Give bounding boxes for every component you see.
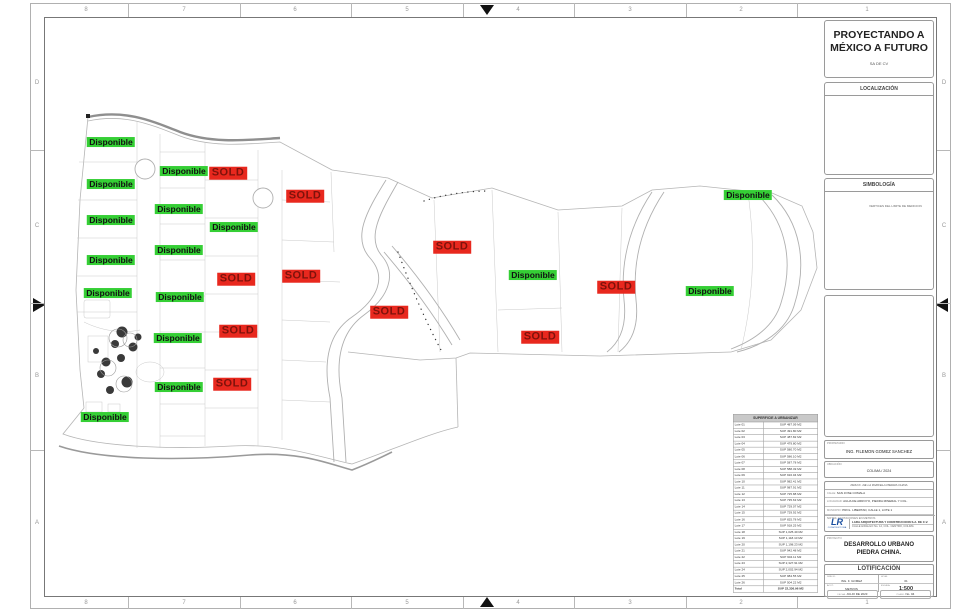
lot-label-available: Disponible — [155, 245, 203, 255]
grid-column-number-top: 8 — [84, 7, 87, 13]
grid-column-number-top: 6 — [293, 7, 296, 13]
info-row: MUNICIPIO: PROL. LIBERTAD, CALLE 1, LOTE… — [825, 507, 933, 515]
field-value: METROS — [825, 587, 878, 591]
ruler-tick — [574, 597, 575, 609]
ruler-tick — [686, 597, 687, 609]
grid-row-letter-right: B — [942, 373, 946, 379]
company-title-block: PROYECTANDO A MÉXICO A FUTURO SA DE CV — [824, 20, 934, 78]
simbologia-title: SIMBOLOGÍA — [825, 179, 933, 192]
lot-label-available: Disponible — [210, 222, 258, 232]
lot-label-available: Disponible — [81, 412, 129, 422]
builder-address: CALLE HIDALGO No. 12, COL. CENTRO, COLIM… — [852, 525, 933, 528]
field-label: ESCALA: — [881, 585, 890, 587]
lot-label-available: Disponible — [87, 137, 135, 147]
grid-row-letter-right: C — [942, 223, 946, 229]
surface-table-title: SUPERFICIE A URBANIZAR — [733, 414, 817, 422]
field-label: HOJA: — [881, 576, 887, 578]
ruler-tick — [797, 597, 798, 609]
company-logo: LR CONSTRUCTORA — [825, 518, 849, 529]
ubicacion-box: UBICACIÓN: COLIMA / 2024 — [824, 461, 934, 478]
grid-column-number-bottom: 6 — [293, 600, 296, 606]
lot-label-sold: SOLD — [521, 331, 559, 344]
info-row: LOCALIDAD: AGUA DE ARROYO, PIEDRA MINERA… — [825, 498, 933, 506]
ruler-tick — [463, 3, 464, 17]
info-row-label: LOCALIDAD: — [827, 500, 842, 503]
lot-label-sold: SOLD — [217, 273, 255, 286]
grid-column-number-top: 4 — [516, 7, 519, 13]
titleblock-field: ACOT: METROS — [825, 584, 879, 592]
grid-column-number-bottom: 2 — [739, 600, 742, 606]
grid-row-letter-left: A — [35, 520, 39, 526]
grid-column-number-top: 3 — [628, 7, 631, 13]
lot-label-available: Disponible — [87, 255, 135, 265]
ruler-tick — [128, 3, 129, 17]
ruler-tick — [574, 3, 575, 17]
owner-box: PROPIETARIO: ING. FILEMON GOMEZ SANCHEZ — [824, 440, 934, 459]
project-info-header: FRACC. DE LA PARCELA PIEDRA CHINA — [825, 482, 933, 490]
lot-label-sold: SOLD — [282, 270, 320, 283]
grid-column-number-top: 2 — [739, 7, 742, 13]
grid-column-number-bottom: 5 — [405, 600, 408, 606]
grid-column-number-bottom: 3 — [628, 600, 631, 606]
field-label: FECHA: — [838, 594, 846, 596]
lot-label-sold: SOLD — [433, 241, 471, 254]
ruler-tick — [937, 303, 951, 304]
total-area: SUP 22,336.96 M2 — [764, 586, 818, 592]
lot-label-sold: SOLD — [286, 190, 324, 203]
ruler-tick — [686, 3, 687, 17]
lot-label-available: Disponible — [154, 333, 202, 343]
lotificacion-block: LOTIFICACIÓN DIBUJO: ING. F. GOMEZ HOJA:… — [824, 564, 934, 597]
ruler-tick — [797, 3, 798, 17]
lot-label-sold: SOLD — [209, 167, 247, 180]
grid-column-number-bottom: 8 — [84, 600, 87, 606]
grid-column-number-bottom: 1 — [865, 600, 868, 606]
lot-label-available: Disponible — [686, 286, 734, 296]
lot-label-available: Disponible — [160, 166, 208, 176]
proyecto-line1: DESARROLLO URBANO — [825, 542, 933, 550]
grid-column-number-top: 7 — [182, 7, 185, 13]
ruler-tick — [463, 597, 464, 609]
field-label: DIBUJO: — [827, 576, 836, 578]
field-value: JULIO DE 2023 — [846, 592, 867, 596]
info-row: CALLE: SAN JOSE COMALA — [825, 490, 933, 498]
lotificacion-title: LOTIFICACIÓN — [825, 565, 933, 575]
ruler-tick — [240, 597, 241, 609]
titleblock-field-escala: ESCALA: 1:500 — [879, 584, 933, 592]
ruler-tick — [937, 450, 951, 451]
lot-label-sold: SOLD — [213, 378, 251, 391]
lot-label-available: Disponible — [724, 190, 772, 200]
field-value: No. 04 — [906, 592, 915, 596]
info-row-label: CALLE: — [827, 492, 836, 495]
ruler-tick — [937, 150, 951, 151]
company-name-line1: PROYECTANDO A — [825, 29, 933, 42]
proyecto-line2: PIEDRA CHINA. — [825, 550, 933, 558]
lot-label-sold: SOLD — [219, 325, 257, 338]
ruler-tick — [30, 450, 44, 451]
info-row-value: PROL. LIBERTAD, CALLE 1, LOTE 1 — [842, 508, 892, 512]
lot-label-sold: SOLD — [370, 306, 408, 319]
ruler-tick — [128, 597, 129, 609]
field-value: ING. F. GOMEZ — [825, 579, 878, 583]
grid-column-number-bottom: 4 — [516, 600, 519, 606]
grid-column-number-top: 5 — [405, 7, 408, 13]
lot-label-available: Disponible — [156, 292, 204, 302]
ruler-tick — [30, 303, 44, 304]
ruler-tick — [30, 150, 44, 151]
field-value: 01 — [879, 579, 933, 583]
legend-label: VERTICES DEL LIMITE DE MEDICION — [869, 204, 931, 208]
logo-subtext: CONSTRUCTORA — [825, 527, 849, 529]
plan-sheet: 8877665544332211DDCCBBAA DisponibleDispo… — [0, 0, 972, 612]
titleblock-field: DIBUJO: ING. F. GOMEZ — [825, 575, 879, 584]
proyecto-box: PROYECTO: DESARROLLO URBANO PIEDRA CHINA… — [824, 535, 934, 562]
company-name-line3: SA DE CV — [825, 57, 933, 70]
total-label: Total — [733, 586, 763, 592]
info-row-value: SAN JOSE COMALA — [837, 491, 865, 495]
simbologia-box: SIMBOLOGÍA VERTICES DEL LIMITE DE MEDICI… — [824, 178, 934, 290]
grid-row-letter-right: A — [942, 520, 946, 526]
titleblock-field: HOJA: 01 — [879, 575, 933, 584]
owner-name: ING. FILEMON GOMEZ SANCHEZ — [825, 449, 933, 454]
localizacion-title: LOCALIZACIÓN — [825, 83, 933, 96]
grid-row-letter-left: D — [35, 80, 39, 86]
grid-row-letter-left: B — [35, 373, 39, 379]
field-label: ACOT: — [827, 585, 833, 587]
ruler-tick — [240, 3, 241, 17]
field-label: PLANO: — [897, 594, 905, 596]
ubicacion-label: UBICACIÓN: — [827, 463, 842, 466]
lot-label-available: Disponible — [155, 204, 203, 214]
project-info-box: FRACC. DE LA PARCELA PIEDRA CHINA CALLE:… — [824, 481, 934, 532]
grid-row-letter-left: C — [35, 223, 39, 229]
lot-label-available: Disponible — [87, 179, 135, 189]
lot-label-available: Disponible — [509, 270, 557, 280]
lot-label-available: Disponible — [84, 288, 132, 298]
info-row-label: MUNICIPIO: — [827, 509, 841, 512]
owner-label: PROPIETARIO: — [827, 442, 845, 445]
info-row-value: AGUA DE ARROYO, PIEDRA MINERAL Y COL. — [843, 499, 907, 503]
surface-table-total: TotalSUP 22,336.96 M2 — [733, 586, 817, 592]
lot-label-sold: SOLD — [597, 281, 635, 294]
lot-label-available: Disponible — [87, 215, 135, 225]
localizacion-box: LOCALIZACIÓN — [824, 82, 934, 175]
grid-column-number-bottom: 7 — [182, 600, 185, 606]
ruler-tick — [351, 3, 352, 17]
grid-column-number-top: 1 — [865, 7, 868, 13]
surface-table: SUPERFICIE A URBANIZAR Lote 01SUP 487.09… — [733, 414, 818, 592]
logo-lr: LR — [825, 518, 849, 527]
ubicacion-value: COLIMA / 2024 — [825, 469, 933, 473]
ruler-tick — [351, 597, 352, 609]
lot-label-available: Disponible — [155, 382, 203, 392]
company-name-line2: MÉXICO A FUTURO — [825, 42, 933, 55]
grid-row-letter-right: D — [942, 80, 946, 86]
proyecto-label: PROYECTO: — [827, 537, 842, 540]
notes-box — [824, 295, 934, 437]
